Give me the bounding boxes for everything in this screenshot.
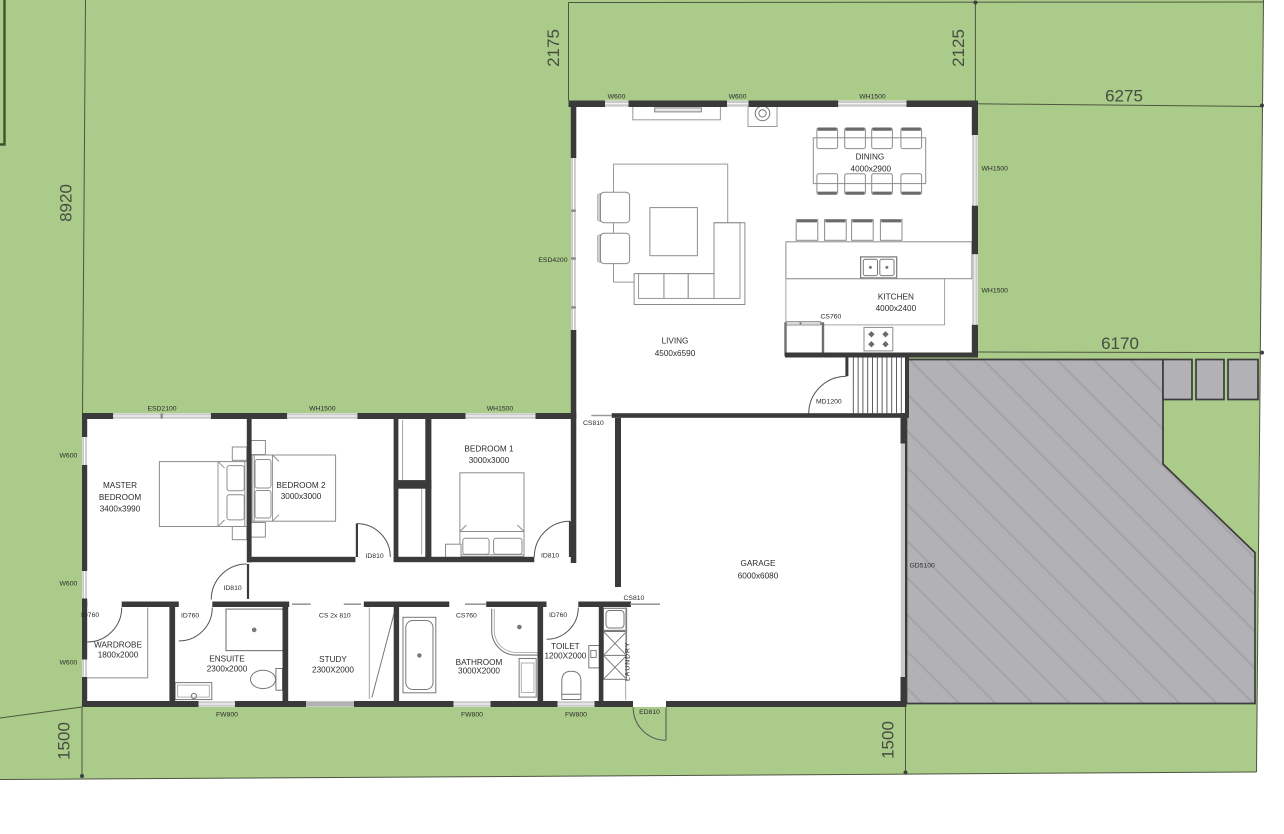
svg-text:1200X2000: 1200X2000 — [544, 652, 586, 661]
svg-text:2300X2000: 2300X2000 — [312, 666, 354, 675]
svg-text:W600: W600 — [60, 453, 78, 460]
svg-text:ESD4200: ESD4200 — [538, 257, 567, 264]
svg-text:LIVING: LIVING — [662, 337, 689, 346]
svg-text:GARAGE: GARAGE — [740, 559, 776, 568]
svg-text:ID810: ID810 — [541, 552, 559, 559]
svg-text:ID760: ID760 — [549, 612, 567, 619]
svg-text:DINING: DINING — [856, 153, 885, 162]
svg-text:WH1500: WH1500 — [982, 288, 1009, 295]
svg-text:CS760: CS760 — [821, 314, 842, 321]
svg-text:1800x2000: 1800x2000 — [98, 651, 139, 660]
svg-text:FW800: FW800 — [216, 712, 238, 719]
svg-text:GD5100: GD5100 — [910, 563, 936, 570]
svg-text:BEDROOM 1: BEDROOM 1 — [464, 445, 514, 454]
svg-text:WH1500: WH1500 — [859, 93, 886, 100]
svg-text:6275: 6275 — [1105, 87, 1143, 106]
svg-text:3400x3990: 3400x3990 — [100, 505, 141, 514]
svg-text:2175: 2175 — [544, 29, 563, 67]
svg-text:ENSUITE: ENSUITE — [209, 655, 245, 664]
svg-text:STUDY: STUDY — [319, 655, 347, 664]
svg-text:CS810: CS810 — [624, 595, 645, 602]
svg-text:1500: 1500 — [879, 721, 898, 759]
svg-text:WH1500: WH1500 — [982, 166, 1009, 173]
svg-text:3000x3000: 3000x3000 — [469, 456, 510, 465]
svg-text:FW800: FW800 — [461, 712, 483, 719]
svg-text:WARDROBE: WARDROBE — [94, 641, 142, 650]
svg-text:3000x3000: 3000x3000 — [281, 492, 322, 501]
svg-text:FW800: FW800 — [565, 712, 587, 719]
svg-text:W600: W600 — [60, 660, 78, 667]
svg-text:KITCHEN: KITCHEN — [878, 293, 914, 302]
svg-text:ID810: ID810 — [366, 553, 384, 560]
svg-text:6000x6080: 6000x6080 — [738, 572, 779, 581]
svg-text:ID810: ID810 — [224, 585, 242, 592]
svg-text:ID760: ID760 — [181, 612, 199, 619]
svg-text:8920: 8920 — [57, 184, 76, 222]
svg-text:CS 2x 810: CS 2x 810 — [319, 612, 351, 619]
svg-text:ID760: ID760 — [81, 612, 99, 619]
svg-text:CS810: CS810 — [583, 420, 604, 427]
svg-text:W600: W600 — [60, 581, 78, 588]
svg-text:TOILET: TOILET — [551, 642, 580, 651]
svg-text:1500: 1500 — [55, 722, 74, 760]
svg-text:BEDROOM 2: BEDROOM 2 — [276, 481, 326, 490]
svg-text:CS760: CS760 — [456, 612, 477, 619]
svg-text:2125: 2125 — [949, 29, 968, 67]
svg-text:4000x2900: 4000x2900 — [851, 165, 892, 174]
svg-text:ED810: ED810 — [639, 709, 660, 716]
svg-text:ESD2100: ESD2100 — [147, 405, 176, 412]
svg-text:6170: 6170 — [1101, 334, 1139, 353]
svg-text:MASTER: MASTER — [103, 481, 137, 490]
svg-text:WH1500: WH1500 — [309, 405, 336, 412]
svg-text:LAUNDRY: LAUNDRY — [625, 642, 632, 681]
svg-text:W600: W600 — [729, 93, 747, 100]
svg-text:WH1500: WH1500 — [487, 405, 514, 412]
svg-text:4000x2400: 4000x2400 — [876, 304, 917, 313]
svg-text:3000X2000: 3000X2000 — [458, 667, 500, 676]
svg-text:MD1200: MD1200 — [816, 399, 842, 406]
svg-text:W600: W600 — [608, 93, 626, 100]
svg-text:4500x6590: 4500x6590 — [655, 349, 696, 358]
svg-text:BEDROOM: BEDROOM — [99, 493, 141, 502]
svg-text:2300x2000: 2300x2000 — [207, 665, 248, 674]
